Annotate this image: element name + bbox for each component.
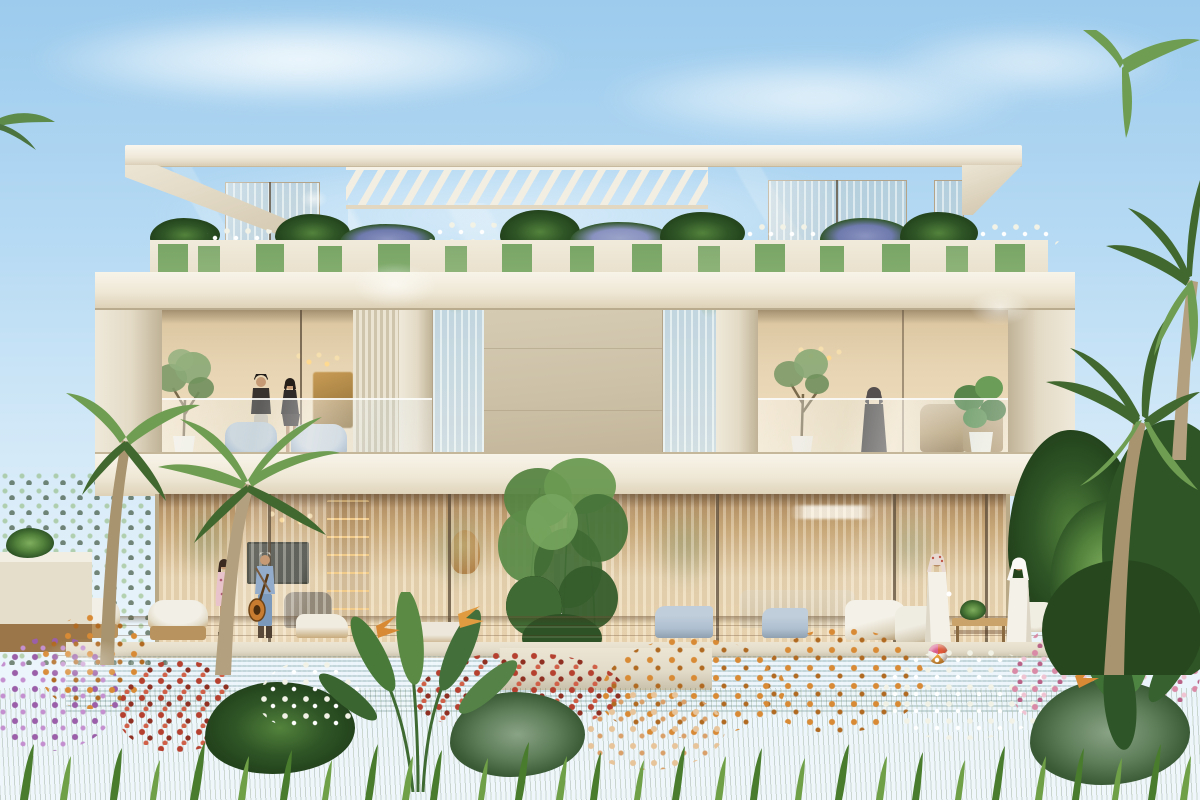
lens-flare — [340, 255, 450, 315]
narrow-window — [662, 298, 718, 460]
sun-glint — [296, 186, 332, 212]
stone-feature-panel — [484, 298, 662, 458]
cloud — [30, 12, 570, 107]
lens-flare — [960, 285, 1040, 331]
lens-flare — [20, 630, 150, 694]
villa-render — [0, 0, 1200, 800]
chaise-blue — [762, 608, 808, 638]
grass-blades — [0, 712, 1200, 800]
glass-balustrade-right — [758, 398, 1008, 460]
roof-slab — [125, 145, 1022, 167]
person-kandura-red-ghutra — [918, 552, 956, 652]
chaise-blue — [655, 606, 713, 638]
palms-left — [30, 185, 340, 675]
stone-seam — [484, 348, 662, 349]
center-pier — [716, 298, 758, 458]
narrow-window — [432, 298, 486, 460]
stone-seam — [484, 410, 662, 411]
palm-frond-corner — [0, 88, 60, 158]
palms-right — [1022, 30, 1200, 675]
